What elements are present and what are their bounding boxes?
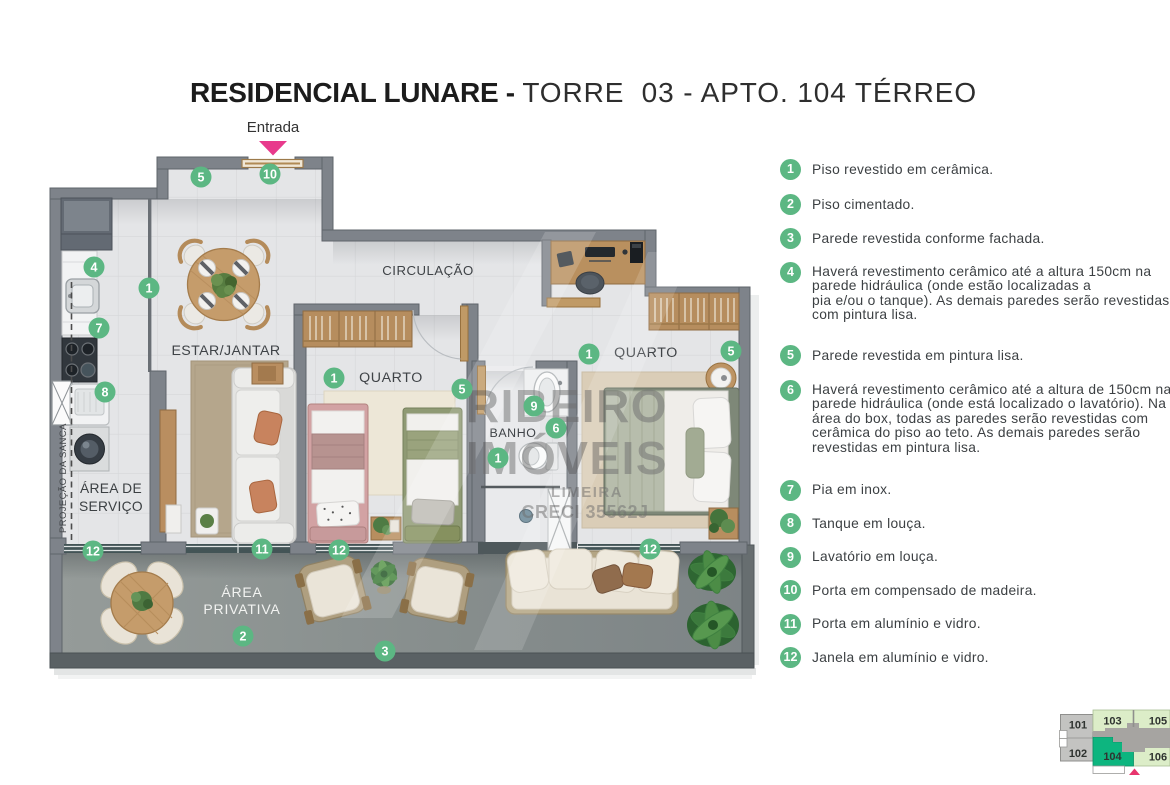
svg-text:1: 1 bbox=[331, 372, 338, 386]
svg-text:101: 101 bbox=[1069, 720, 1087, 732]
svg-text:Entrada: Entrada bbox=[247, 119, 300, 136]
svg-text:5: 5 bbox=[728, 345, 735, 359]
svg-text:ÁREA: ÁREA bbox=[221, 584, 262, 600]
svg-text:104: 104 bbox=[1103, 751, 1122, 763]
svg-text:105: 105 bbox=[1149, 716, 1167, 728]
svg-text:1: 1 bbox=[495, 452, 502, 466]
svg-text:5: 5 bbox=[459, 383, 466, 397]
svg-text:12: 12 bbox=[643, 543, 657, 557]
svg-text:10: 10 bbox=[263, 168, 277, 182]
svg-text:12: 12 bbox=[86, 545, 100, 559]
svg-text:12: 12 bbox=[332, 544, 346, 558]
svg-text:ÁREA DE: ÁREA DE bbox=[80, 480, 142, 496]
svg-text:CIRCULAÇÃO: CIRCULAÇÃO bbox=[382, 263, 473, 278]
svg-text:CRECI 35562J: CRECI 35562J bbox=[521, 502, 648, 522]
svg-text:8: 8 bbox=[102, 386, 109, 400]
svg-text:ESTAR/JANTAR: ESTAR/JANTAR bbox=[171, 343, 280, 359]
svg-text:2: 2 bbox=[240, 630, 247, 644]
svg-text:SERVIÇO: SERVIÇO bbox=[79, 499, 143, 514]
svg-text:102: 102 bbox=[1069, 748, 1087, 760]
svg-text:4: 4 bbox=[91, 261, 98, 275]
svg-text:106: 106 bbox=[1149, 752, 1167, 764]
svg-text:6: 6 bbox=[553, 422, 560, 436]
svg-text:PROJEÇÃO DA SANCA: PROJEÇÃO DA SANCA bbox=[58, 423, 69, 533]
svg-text:LIMEIRA: LIMEIRA bbox=[551, 484, 623, 501]
svg-text:11: 11 bbox=[255, 543, 268, 557]
svg-text:1: 1 bbox=[146, 282, 153, 296]
svg-text:RIBEIRO: RIBEIRO bbox=[466, 380, 668, 432]
svg-text:PRIVATIVA: PRIVATIVA bbox=[203, 601, 280, 617]
svg-text:9: 9 bbox=[531, 400, 538, 414]
svg-text:7: 7 bbox=[96, 322, 103, 336]
svg-text:1: 1 bbox=[586, 348, 593, 362]
svg-text:5: 5 bbox=[198, 171, 205, 185]
svg-text:103: 103 bbox=[1103, 716, 1121, 728]
svg-text:QUARTO: QUARTO bbox=[359, 370, 423, 386]
svg-text:3: 3 bbox=[382, 645, 389, 659]
